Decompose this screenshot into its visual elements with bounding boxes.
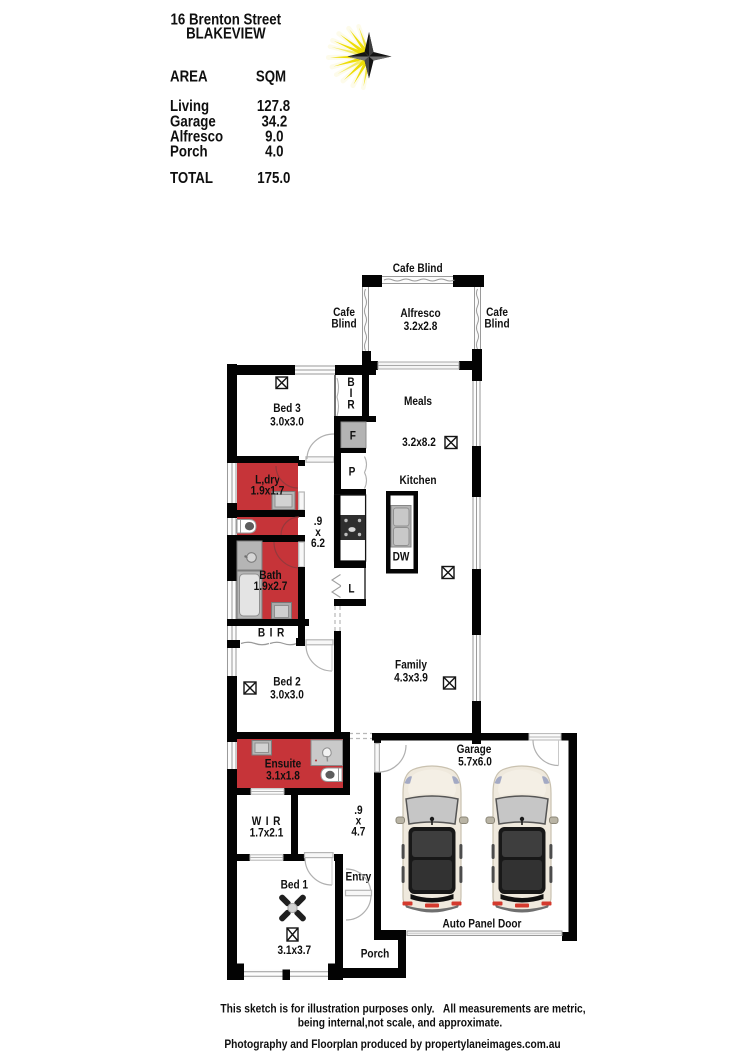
svg-text:Bed 3: Bed 3 [273, 402, 300, 415]
svg-text:Photography and Floorplan prod: Photography and Floorplan produced by pr… [224, 1038, 560, 1051]
svg-text:Blind: Blind [484, 318, 509, 331]
svg-text:Bed 2: Bed 2 [273, 676, 300, 689]
svg-text:3.0x3.0: 3.0x3.0 [270, 416, 304, 429]
svg-text:Cafe Blind: Cafe Blind [393, 262, 443, 275]
svg-text:1.7x2.1: 1.7x2.1 [250, 827, 284, 840]
svg-text:Auto Panel Door: Auto Panel Door [443, 918, 523, 931]
svg-text:1.9x2.7: 1.9x2.7 [254, 580, 288, 593]
svg-text:L: L [348, 583, 354, 596]
svg-text:127.8: 127.8 [257, 98, 290, 115]
svg-text:3.1x3.7: 3.1x3.7 [277, 944, 311, 957]
svg-text:4.3x3.9: 4.3x3.9 [394, 672, 428, 685]
svg-text:3.0x3.0: 3.0x3.0 [270, 689, 304, 702]
svg-text:BLAKEVIEW: BLAKEVIEW [186, 26, 266, 43]
svg-text:Family: Family [395, 659, 428, 672]
svg-text:B I R: B I R [258, 627, 285, 640]
svg-text:5.7x6.0: 5.7x6.0 [458, 756, 492, 769]
svg-text:Kitchen: Kitchen [400, 474, 437, 487]
svg-text:Bed 1: Bed 1 [281, 879, 308, 892]
svg-text:Meals: Meals [404, 395, 432, 408]
svg-text:This sketch is for illustratio: This sketch is for illustration purposes… [220, 1003, 585, 1016]
svg-text:4.0: 4.0 [265, 143, 283, 160]
svg-text:Porch: Porch [361, 948, 390, 961]
svg-text:F: F [350, 430, 356, 443]
svg-text:175.0: 175.0 [257, 170, 290, 187]
svg-text:6.2: 6.2 [311, 537, 325, 550]
svg-text:SQM: SQM [256, 68, 286, 85]
svg-text:3.2x2.8: 3.2x2.8 [404, 320, 438, 333]
svg-text:4.7: 4.7 [351, 826, 365, 839]
svg-text:Alfresco: Alfresco [400, 307, 441, 320]
svg-text:DW: DW [393, 551, 410, 564]
svg-text:Living: Living [170, 98, 209, 115]
svg-text:3.1x1.8: 3.1x1.8 [266, 770, 300, 783]
svg-text:Blind: Blind [331, 318, 356, 331]
svg-text:1.9x1.7: 1.9x1.7 [251, 485, 285, 498]
svg-text:Garage: Garage [457, 743, 492, 756]
svg-text:3.2x8.2: 3.2x8.2 [402, 436, 436, 449]
svg-text:R: R [347, 399, 354, 412]
svg-text:AREA: AREA [170, 68, 208, 85]
svg-text:P: P [349, 466, 356, 479]
svg-text:being internal,not scale, and: being internal,not scale, and approximat… [298, 1017, 503, 1030]
svg-text:Porch: Porch [170, 143, 208, 160]
svg-text:TOTAL: TOTAL [170, 170, 213, 187]
